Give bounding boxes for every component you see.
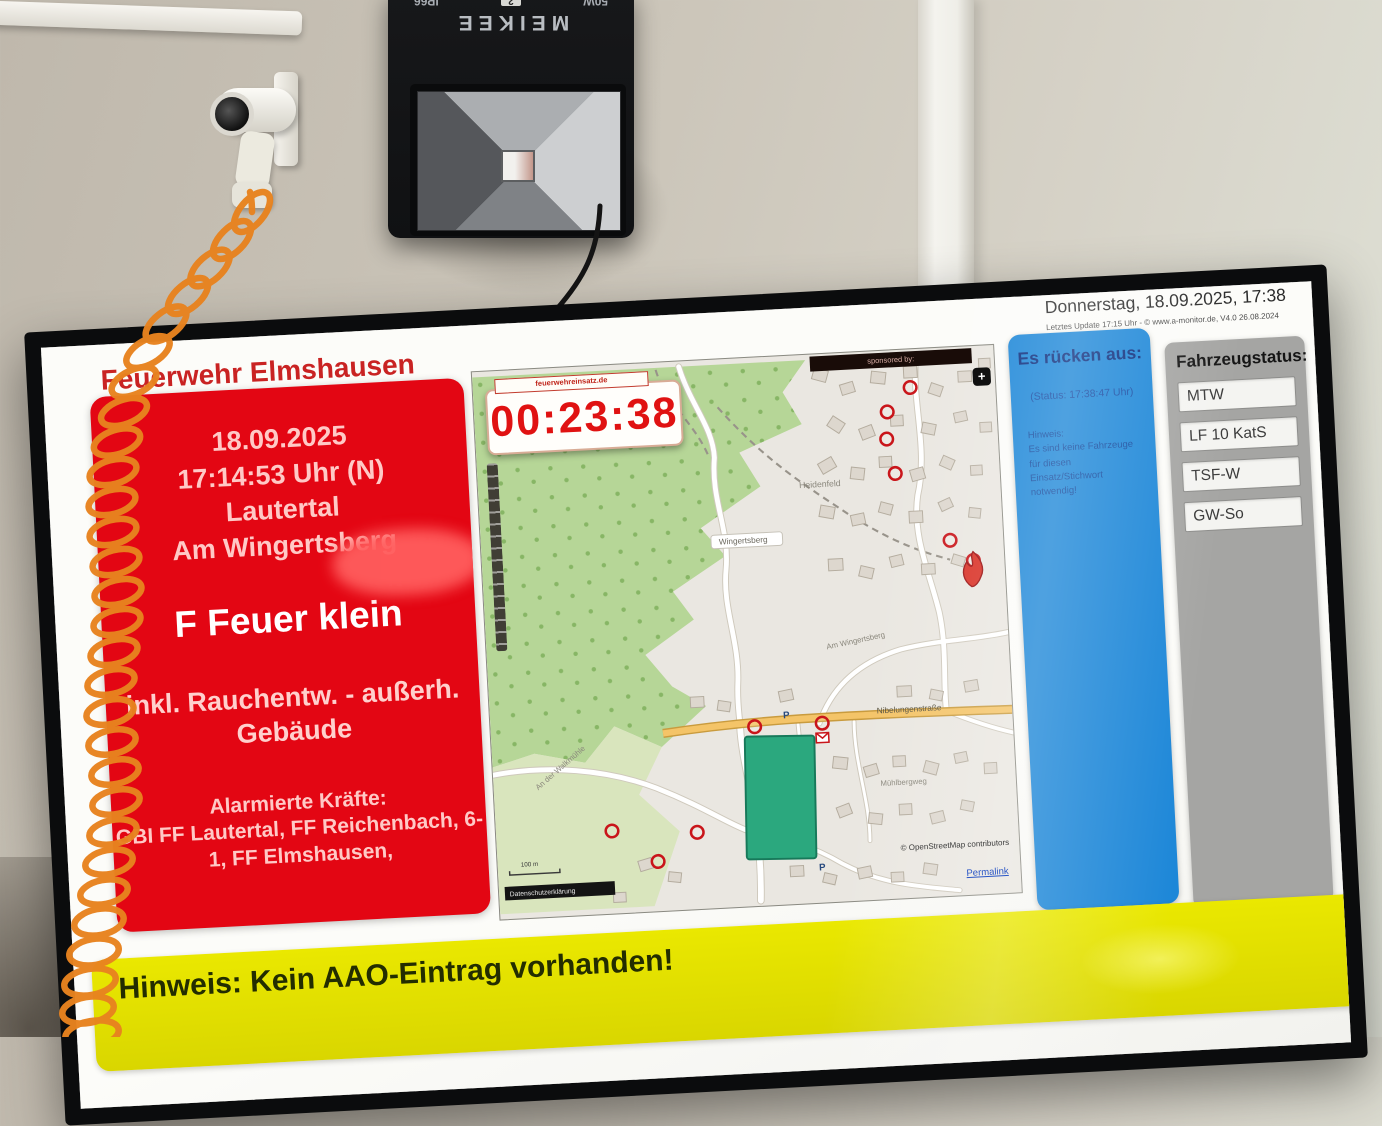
alarm-panel: 18.09.2025 17:14:53 Uhr (N) Lautertal Am…	[90, 378, 492, 933]
map-expand-button[interactable]: +	[972, 367, 991, 386]
incident-map[interactable]: Heidenfeld Wingertsberg Am Wingertsberg …	[471, 344, 1023, 921]
monitor-screen: Feuerwehr Elmshausen Donnerstag, 18.09.2…	[41, 281, 1351, 1109]
vehicle-row-mtw: MTW	[1177, 376, 1296, 412]
dispatch-title: Es rücken aus:	[1008, 328, 1152, 370]
camera-lens-icon	[210, 92, 254, 136]
vehicle-row-lf10: LF 10 KatS	[1179, 416, 1298, 452]
cable-conduit	[0, 0, 302, 35]
dispatch-hint-text: Es sind keine Fahrzeuge für diesen Einsa…	[1028, 437, 1146, 500]
camera-body	[216, 88, 296, 132]
vehicle-row-tsfw: TSF-W	[1181, 456, 1300, 492]
permalink-link[interactable]: Permalink	[966, 866, 1009, 879]
floodlight-label-area: MEIKEE 50W 2 IP66	[388, 0, 634, 34]
alarm-monitor-tv: Feuerwehr Elmshausen Donnerstag, 18.09.2…	[24, 264, 1368, 1125]
dispatch-panel: Es rücken aus: (Status: 17:38:47 Uhr) Hi…	[1008, 328, 1180, 911]
floodlight-power: 50W	[583, 0, 608, 8]
vehicle-row-gwso: GW-So	[1184, 496, 1303, 532]
floodlight-ip-rating: IP66	[414, 0, 439, 8]
map-sports-field	[745, 735, 817, 859]
floodlight-led	[501, 150, 535, 182]
map-parking-label-2: P	[819, 862, 827, 873]
floodlight-brand: MEIKEE	[388, 10, 634, 34]
svg-text:100 m: 100 m	[521, 861, 539, 869]
dispatch-status: (Status: 17:38:47 Uhr)	[1011, 385, 1153, 404]
map-parking-label-1: P	[783, 710, 791, 721]
wall-camera	[212, 72, 332, 212]
vehicle-status-panel: Fahrzeugstatus: MTW LF 10 KatS TSF-W GW-…	[1164, 336, 1333, 909]
alarm-keyword: F Feuer klein	[101, 588, 477, 650]
floodlight: MEIKEE 50W 2 IP66	[388, 0, 634, 238]
wall-pillar	[918, 0, 974, 300]
floodlight-reflector	[410, 84, 626, 236]
camera-cap	[232, 182, 272, 208]
message-marker-icon	[816, 733, 829, 743]
vehicle-status-title: Fahrzeugstatus:	[1176, 346, 1295, 372]
floodlight-tag: 2	[501, 0, 521, 7]
